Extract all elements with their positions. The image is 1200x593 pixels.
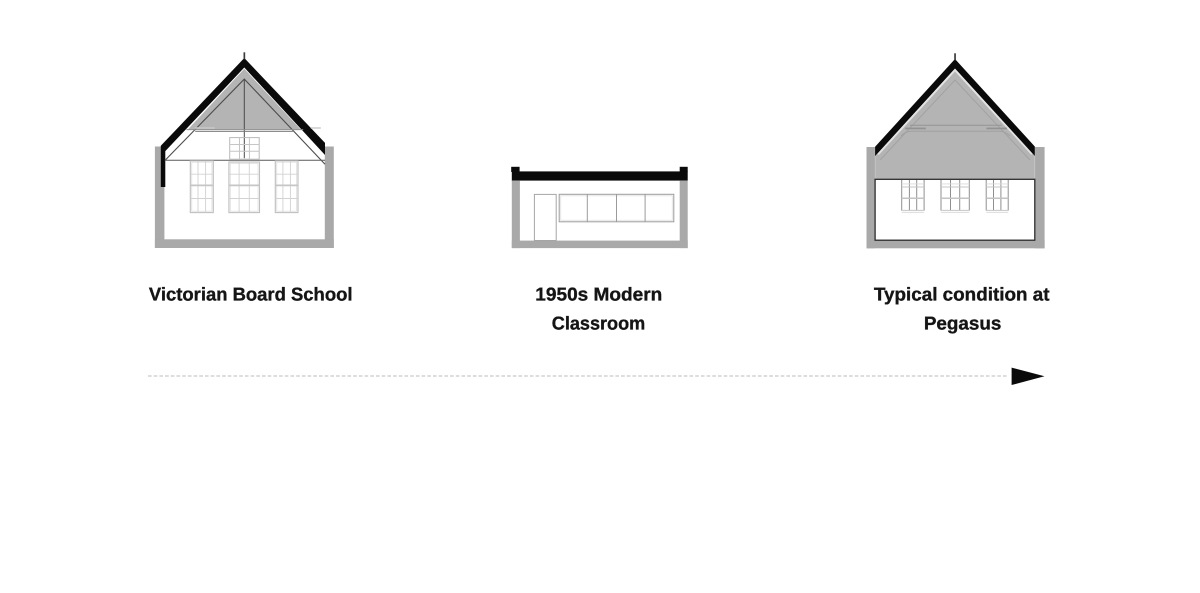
svg-text:Pegasus: Pegasus <box>924 313 1002 334</box>
svg-text:Typical condition at: Typical condition at <box>874 283 1050 304</box>
svg-text:Classroom: Classroom <box>552 313 646 334</box>
svg-text:Victorian Board School: Victorian Board School <box>149 284 353 305</box>
svg-text:1950s Modern: 1950s Modern <box>535 283 662 304</box>
